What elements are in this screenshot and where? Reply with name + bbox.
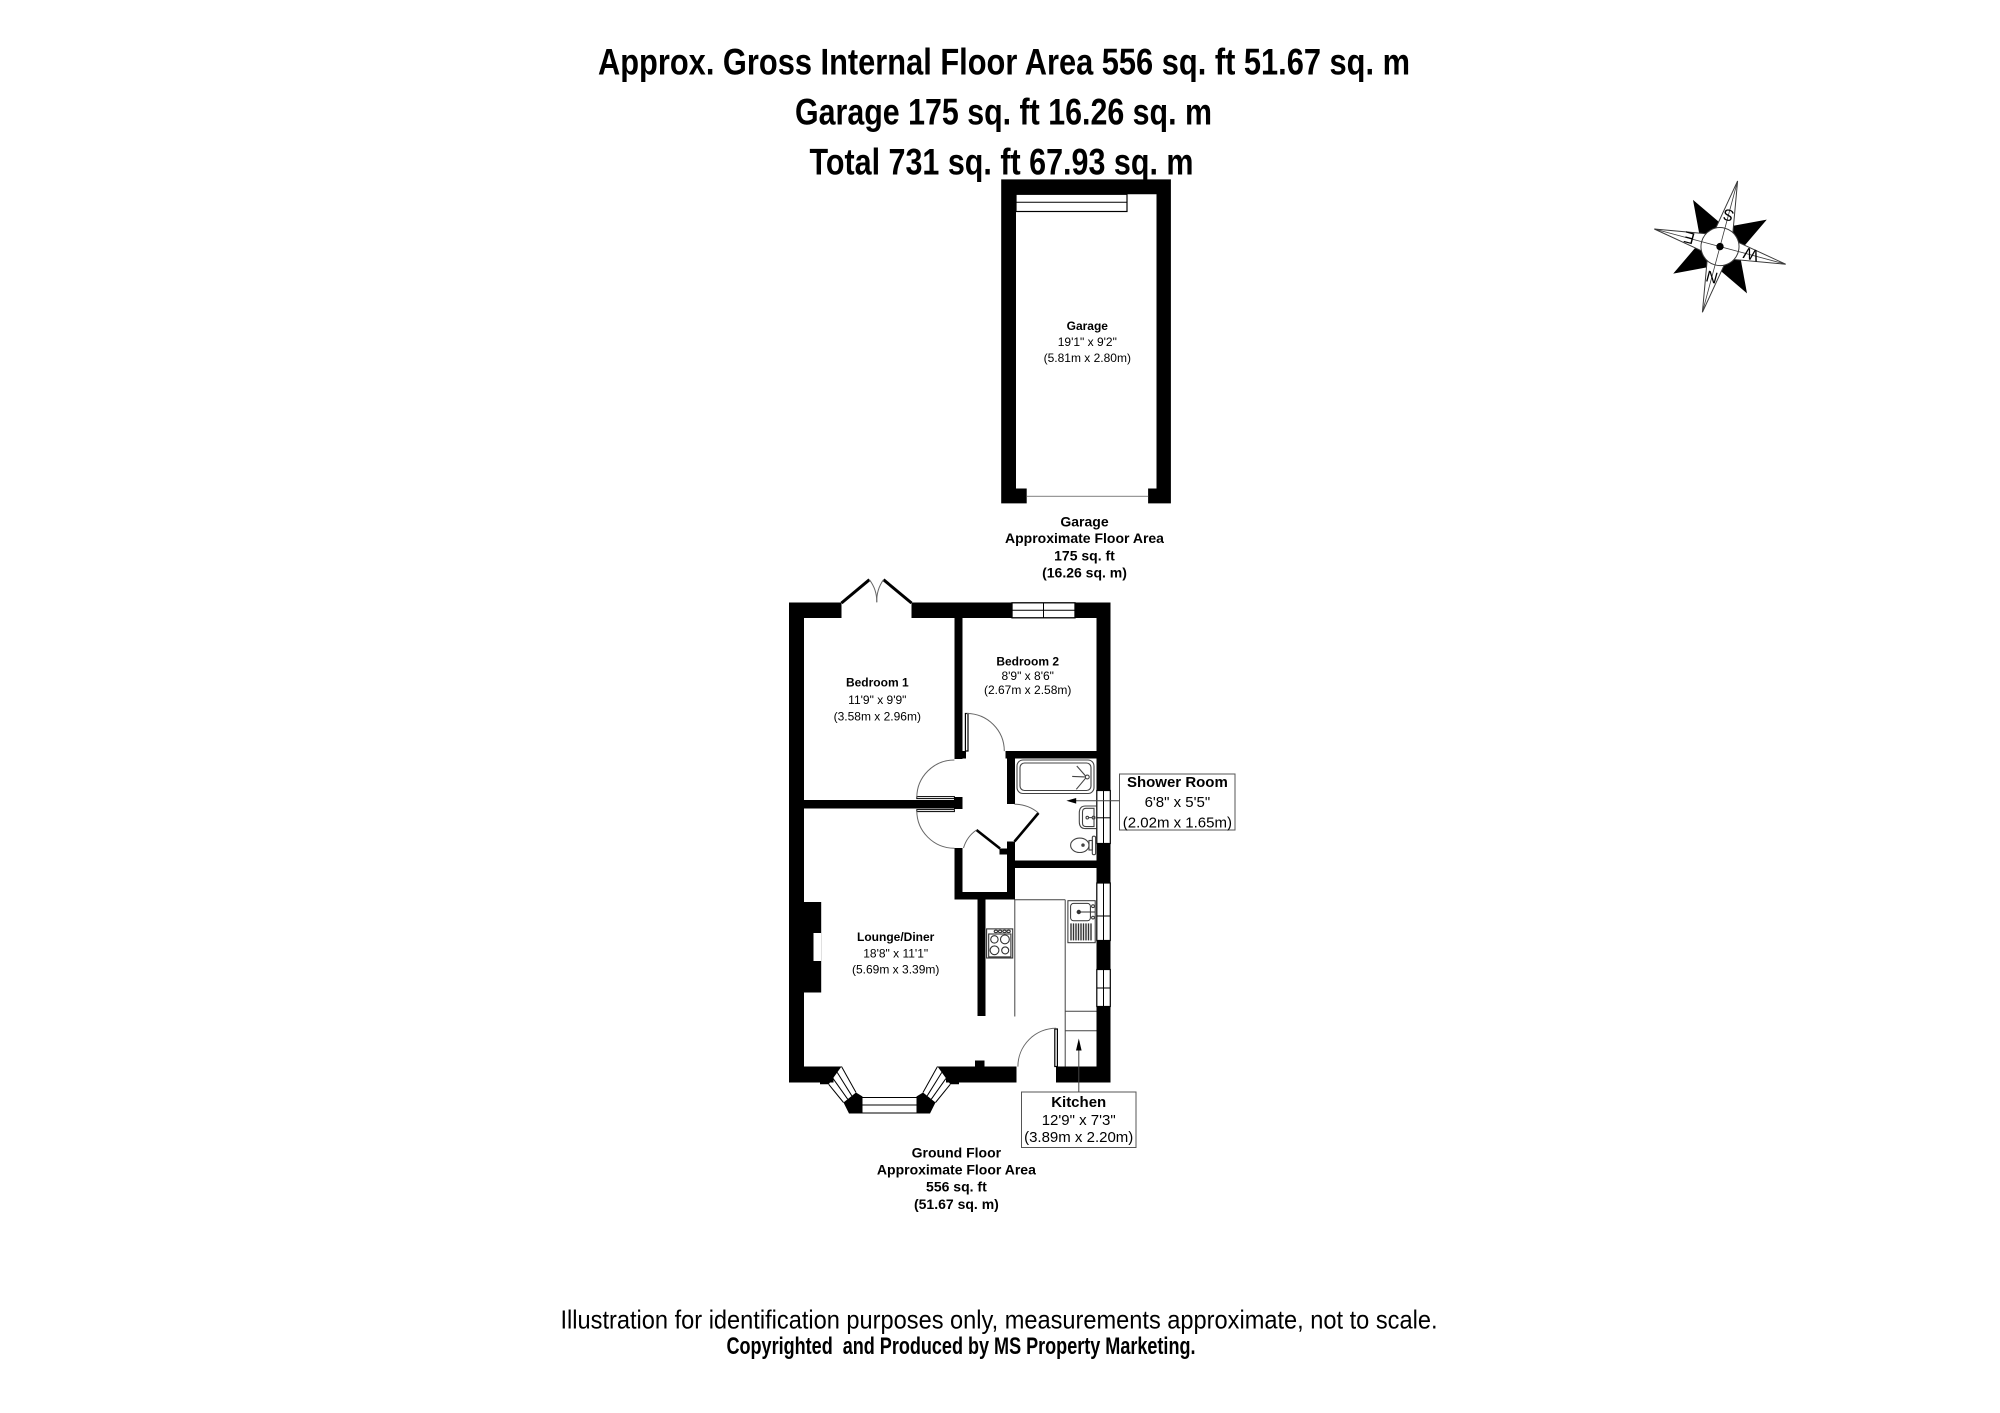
svg-text:Bedroom 2: Bedroom 2	[996, 654, 1059, 668]
svg-text:(16.26 sq. m): (16.26 sq. m)	[1042, 565, 1127, 581]
svg-text:556 sq. ft: 556 sq. ft	[926, 1179, 987, 1195]
svg-text:(3.89m x 2.20m): (3.89m x 2.20m)	[1024, 1129, 1133, 1146]
svg-text:Approximate Floor Area: Approximate Floor Area	[877, 1162, 1036, 1178]
svg-text:Copyrighted and Produced by M: Copyrighted and Produced by MS Property …	[727, 1333, 1196, 1360]
svg-text:6'8" x 5'5": 6'8" x 5'5"	[1145, 794, 1211, 811]
svg-text:Total 731 sq. ft 67.93 sq. m: Total 731 sq. ft 67.93 sq. m	[810, 142, 1194, 183]
svg-text:(3.58m x 2.96m): (3.58m x 2.96m)	[834, 710, 921, 724]
svg-text:Ground Floor: Ground Floor	[912, 1145, 1002, 1161]
svg-text:Lounge/Diner: Lounge/Diner	[857, 930, 935, 944]
svg-text:175 sq. ft: 175 sq. ft	[1054, 548, 1115, 564]
svg-text:8'9" x 8'6": 8'9" x 8'6"	[1001, 669, 1053, 683]
svg-text:(2.02m x 1.65m): (2.02m x 1.65m)	[1123, 815, 1232, 832]
svg-text:Kitchen: Kitchen	[1051, 1094, 1106, 1111]
svg-text:(2.67m x 2.58m): (2.67m x 2.58m)	[984, 683, 1071, 697]
svg-text:Approx. Gross Internal Floor A: Approx. Gross Internal Floor Area 556 sq…	[598, 42, 1410, 83]
svg-text:Garage 175 sq. ft 16.26 sq. m: Garage 175 sq. ft 16.26 sq. m	[795, 92, 1212, 133]
svg-text:(5.81m x 2.80m): (5.81m x 2.80m)	[1044, 351, 1131, 365]
svg-text:Illustration for identificatio: Illustration for identification purposes…	[561, 1304, 1438, 1334]
svg-text:Approximate Floor Area: Approximate Floor Area	[1005, 530, 1164, 546]
svg-text:Bedroom 1: Bedroom 1	[846, 676, 909, 690]
svg-text:11'9" x 9'9": 11'9" x 9'9"	[848, 693, 906, 707]
svg-text:(5.69m x 3.39m): (5.69m x 3.39m)	[852, 962, 939, 976]
svg-text:(51.67 sq. m): (51.67 sq. m)	[914, 1196, 999, 1212]
svg-text:Garage: Garage	[1060, 514, 1108, 530]
svg-text:18'8" x 11'1": 18'8" x 11'1"	[863, 946, 928, 960]
svg-text:19'1" x 9'2": 19'1" x 9'2"	[1058, 335, 1117, 349]
svg-text:12'9" x 7'3": 12'9" x 7'3"	[1042, 1112, 1116, 1129]
svg-text:Shower Room: Shower Room	[1127, 774, 1228, 791]
svg-text:Garage: Garage	[1067, 319, 1109, 333]
